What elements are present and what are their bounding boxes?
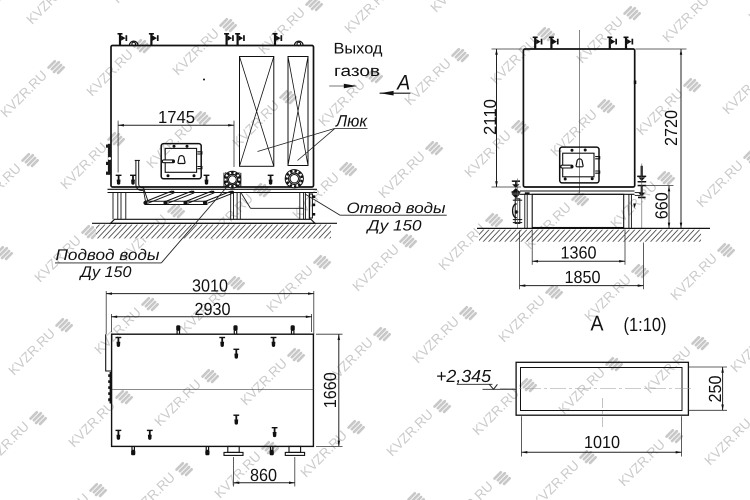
svg-text:Ду 150: Ду 150 bbox=[78, 264, 131, 281]
svg-text:860: 860 bbox=[250, 465, 277, 485]
svg-text:1850: 1850 bbox=[565, 267, 601, 287]
svg-text:1010: 1010 bbox=[584, 432, 620, 452]
svg-text:Ду 150: Ду 150 bbox=[365, 218, 422, 235]
svg-text:A: A bbox=[395, 72, 410, 95]
svg-text:A: A bbox=[591, 312, 605, 336]
svg-text:газов: газов bbox=[334, 63, 380, 80]
svg-text:3010: 3010 bbox=[192, 275, 228, 295]
svg-text:2720: 2720 bbox=[661, 110, 681, 146]
svg-text:1745: 1745 bbox=[158, 107, 195, 127]
svg-text:2110: 2110 bbox=[480, 99, 500, 135]
svg-text:250: 250 bbox=[705, 375, 725, 402]
svg-text:Подвод воды: Подвод воды bbox=[56, 247, 161, 264]
svg-text:2930: 2930 bbox=[195, 299, 231, 319]
svg-text:1660: 1660 bbox=[320, 372, 340, 408]
svg-text:Отвод воды: Отвод воды bbox=[347, 200, 446, 217]
svg-text:1360: 1360 bbox=[561, 243, 597, 263]
svg-text:Выход: Выход bbox=[334, 41, 383, 58]
svg-text:Люк: Люк bbox=[335, 113, 368, 131]
svg-text:660: 660 bbox=[651, 192, 671, 219]
svg-text:+2,345: +2,345 bbox=[436, 366, 491, 386]
svg-text:(1:10): (1:10) bbox=[624, 315, 667, 336]
